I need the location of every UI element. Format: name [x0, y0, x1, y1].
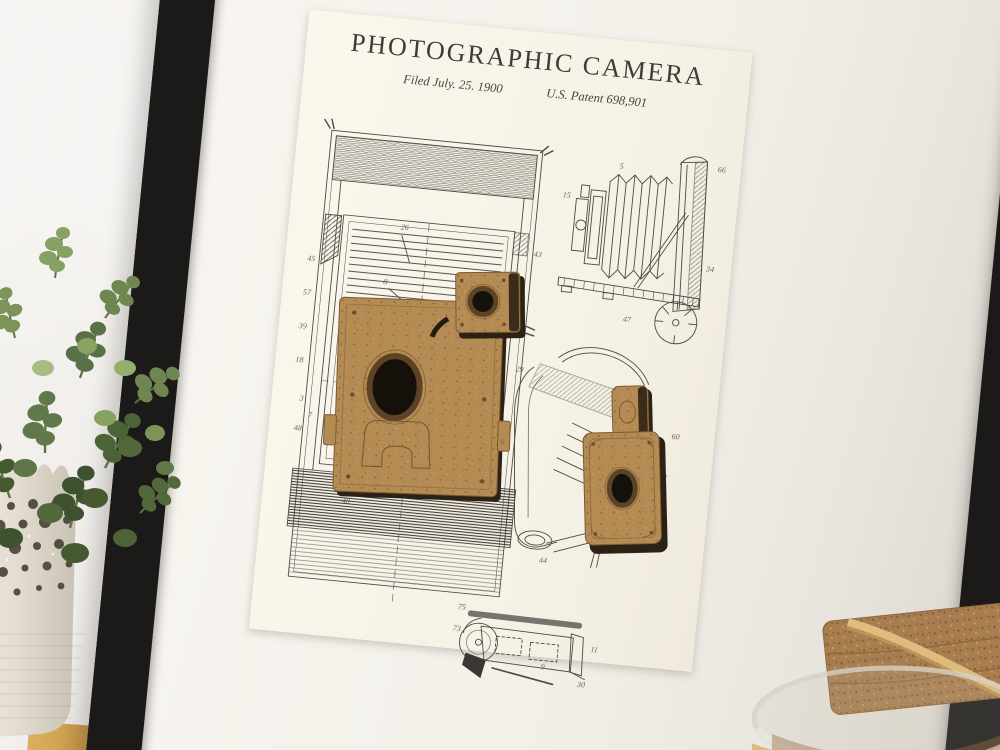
print-filed-date: Filed July. 25. 1900: [403, 72, 504, 97]
figure-ref-number: 34: [705, 264, 715, 274]
figure-ref-number: 39: [297, 321, 307, 331]
figure-ref-number: 11: [590, 645, 598, 655]
photo-scene: PHOTOGRAPHIC CAMERA Filed July. 25. 1900…: [0, 0, 1000, 750]
figure-ref-number: 7: [308, 410, 314, 419]
glass-bowl-rim: [754, 668, 1000, 750]
figure-ref-number: 3: [298, 393, 304, 402]
figure-ref-number: 60: [671, 432, 680, 442]
cork-coaster-jar: [752, 596, 1000, 750]
figure-ref-number: 9: [540, 662, 545, 671]
plant: [0, 168, 255, 598]
figure-ref-number: 18: [295, 355, 304, 365]
print-patent-number: U.S. Patent 698,901: [546, 86, 648, 111]
figure-ref-number: 48: [293, 423, 302, 433]
figure-ref-number: 44: [539, 556, 548, 566]
patent-print-sheet: PHOTOGRAPHIC CAMERA Filed July. 25. 1900…: [249, 10, 753, 672]
patent-figure-perspective-view: 29 6 44 51 60: [480, 324, 695, 584]
figure-ref-number: 45: [307, 253, 316, 263]
figure-ref-number: 29: [515, 364, 524, 374]
figure-ref-number: 26: [400, 222, 409, 232]
figure-ref-number: 43: [533, 250, 542, 260]
figure-ref-number: 6: [500, 437, 505, 446]
figure-ref-number: 15: [562, 190, 571, 200]
figure-ref-number: 57: [303, 287, 313, 297]
patent-figure-side-view: 15 5 47 34 66: [542, 137, 735, 357]
figure-ref-number: 73: [452, 623, 461, 633]
figure-ref-number: 30: [576, 680, 586, 690]
figure-ref-number: 47: [622, 315, 632, 325]
figure-ref-number: 66: [717, 165, 726, 175]
figure-ref-number: 5: [619, 162, 624, 171]
figure-ref-number: 40: [341, 496, 350, 506]
figure-ref-number: 75: [458, 602, 467, 612]
patent-figure-detail: 75 73 11 9 30: [446, 581, 609, 700]
